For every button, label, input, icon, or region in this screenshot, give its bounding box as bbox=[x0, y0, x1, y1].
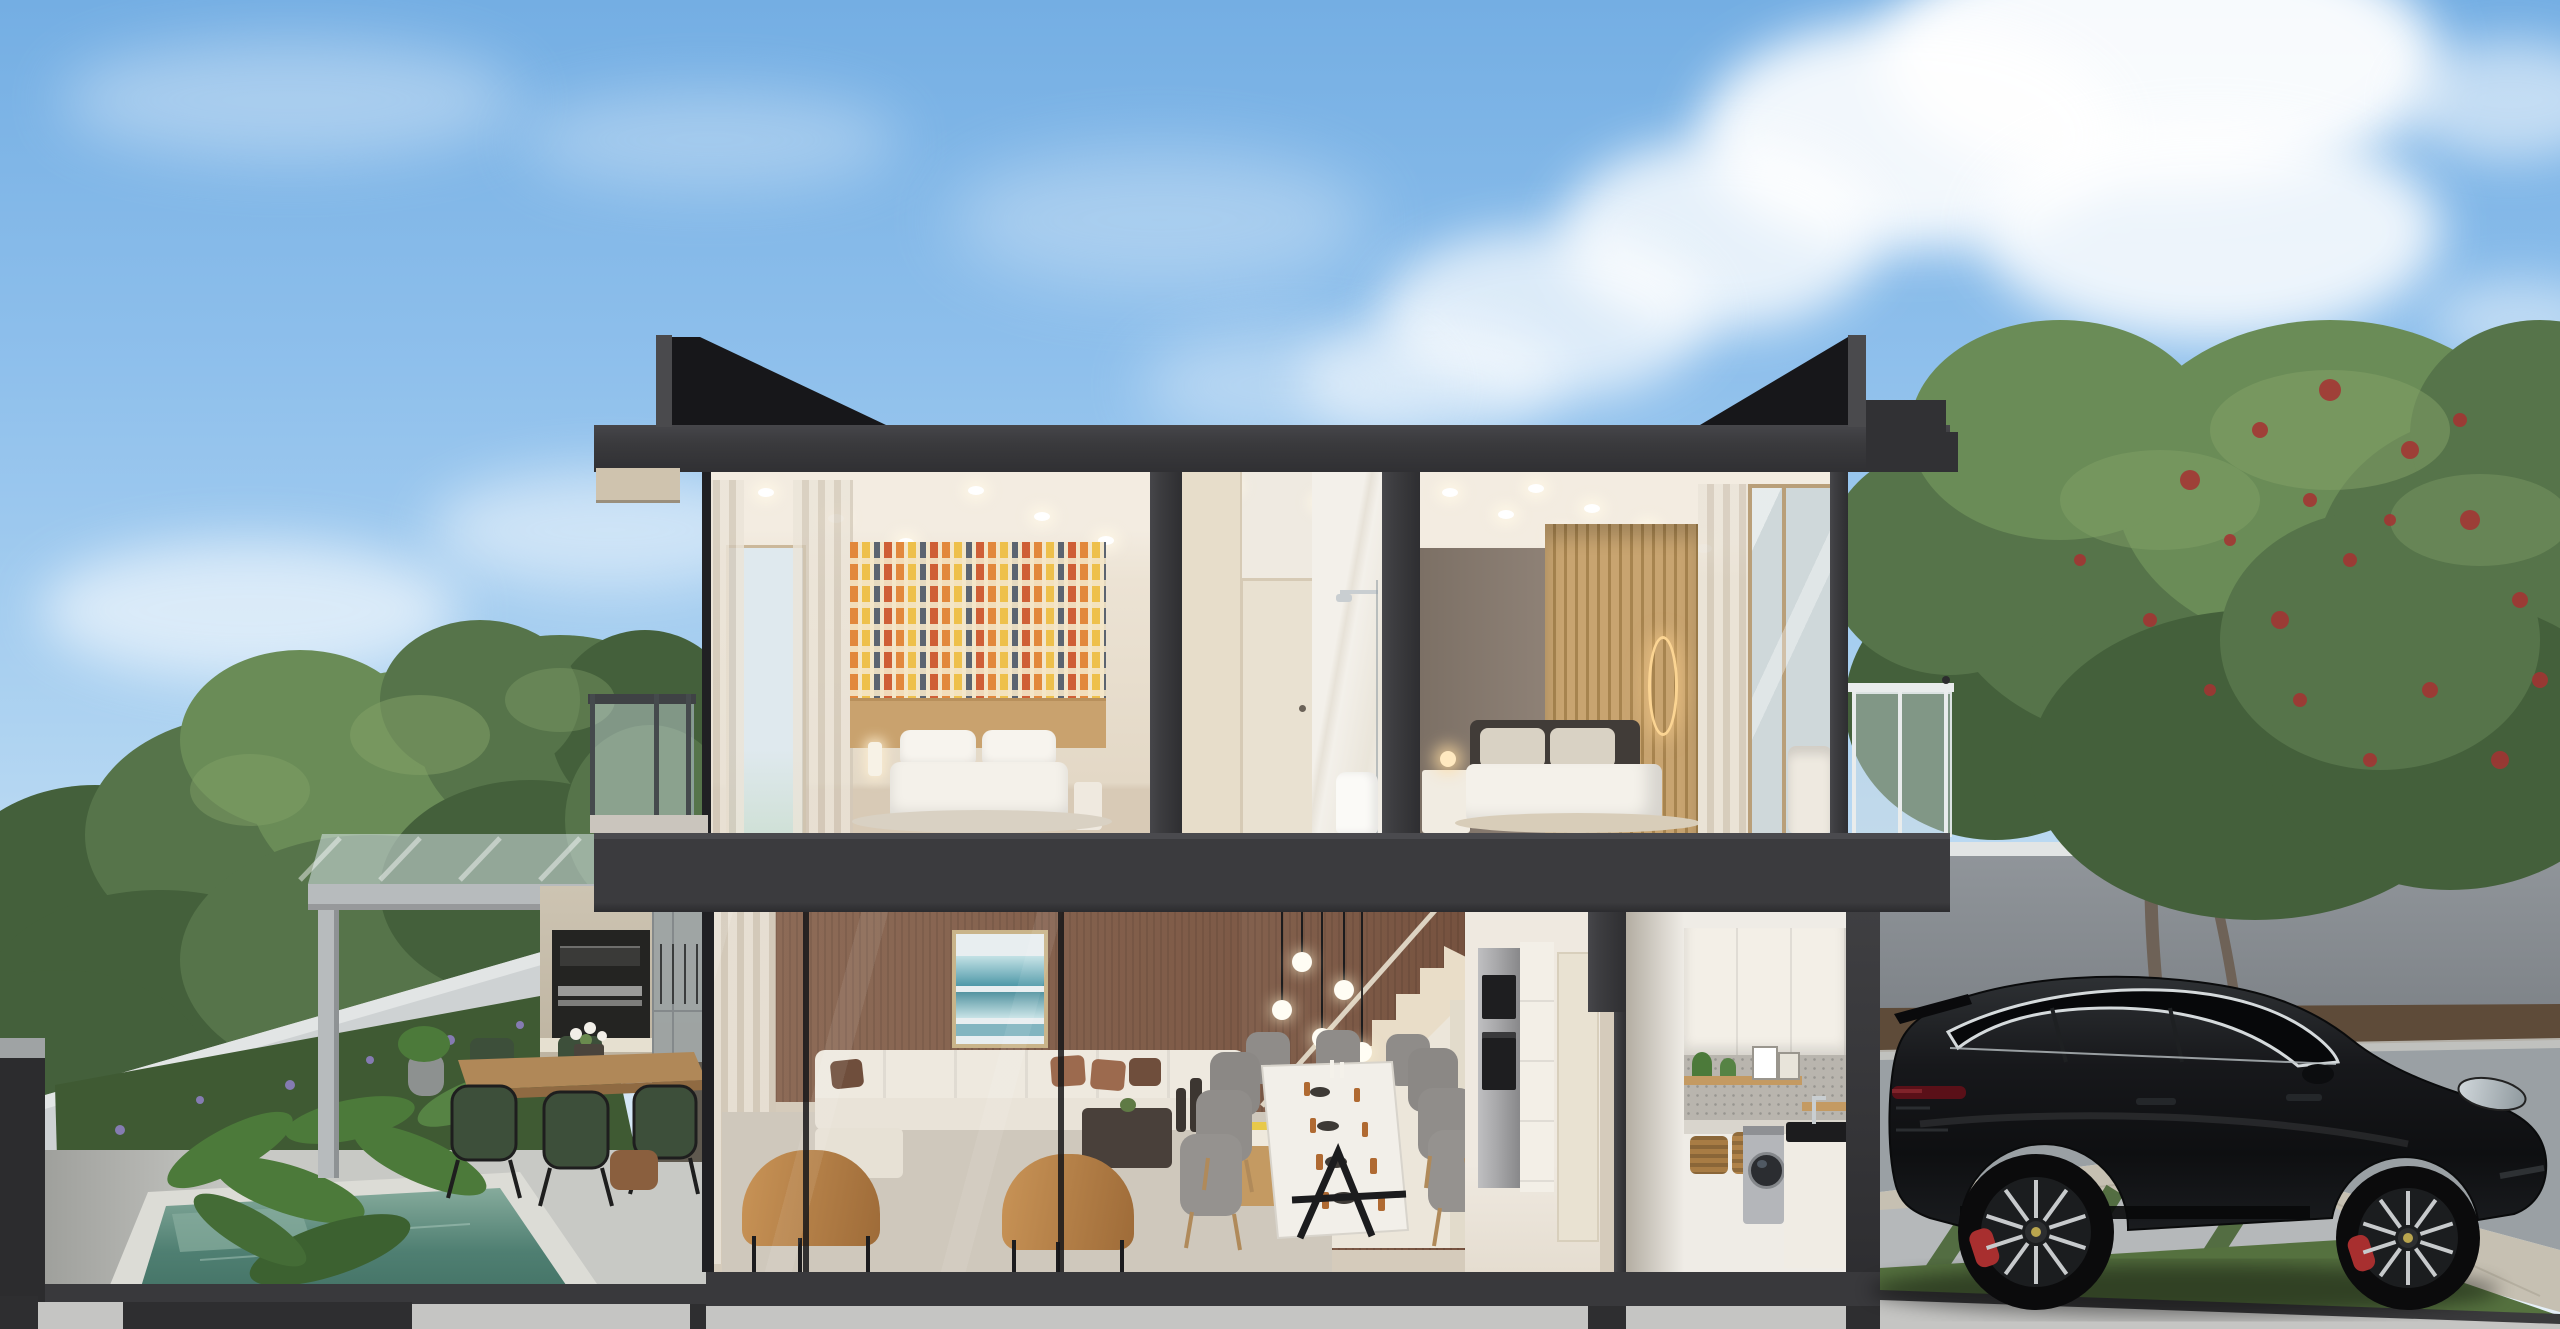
door-handle bbox=[2136, 1098, 2176, 1105]
suv-car bbox=[0, 0, 2560, 1329]
door-handle bbox=[2286, 1094, 2322, 1101]
architectural-section-render bbox=[0, 0, 2560, 1329]
side-mirror bbox=[2302, 1064, 2334, 1084]
front-wheel bbox=[2336, 1166, 2480, 1310]
rear-wheel bbox=[1958, 1154, 2114, 1310]
